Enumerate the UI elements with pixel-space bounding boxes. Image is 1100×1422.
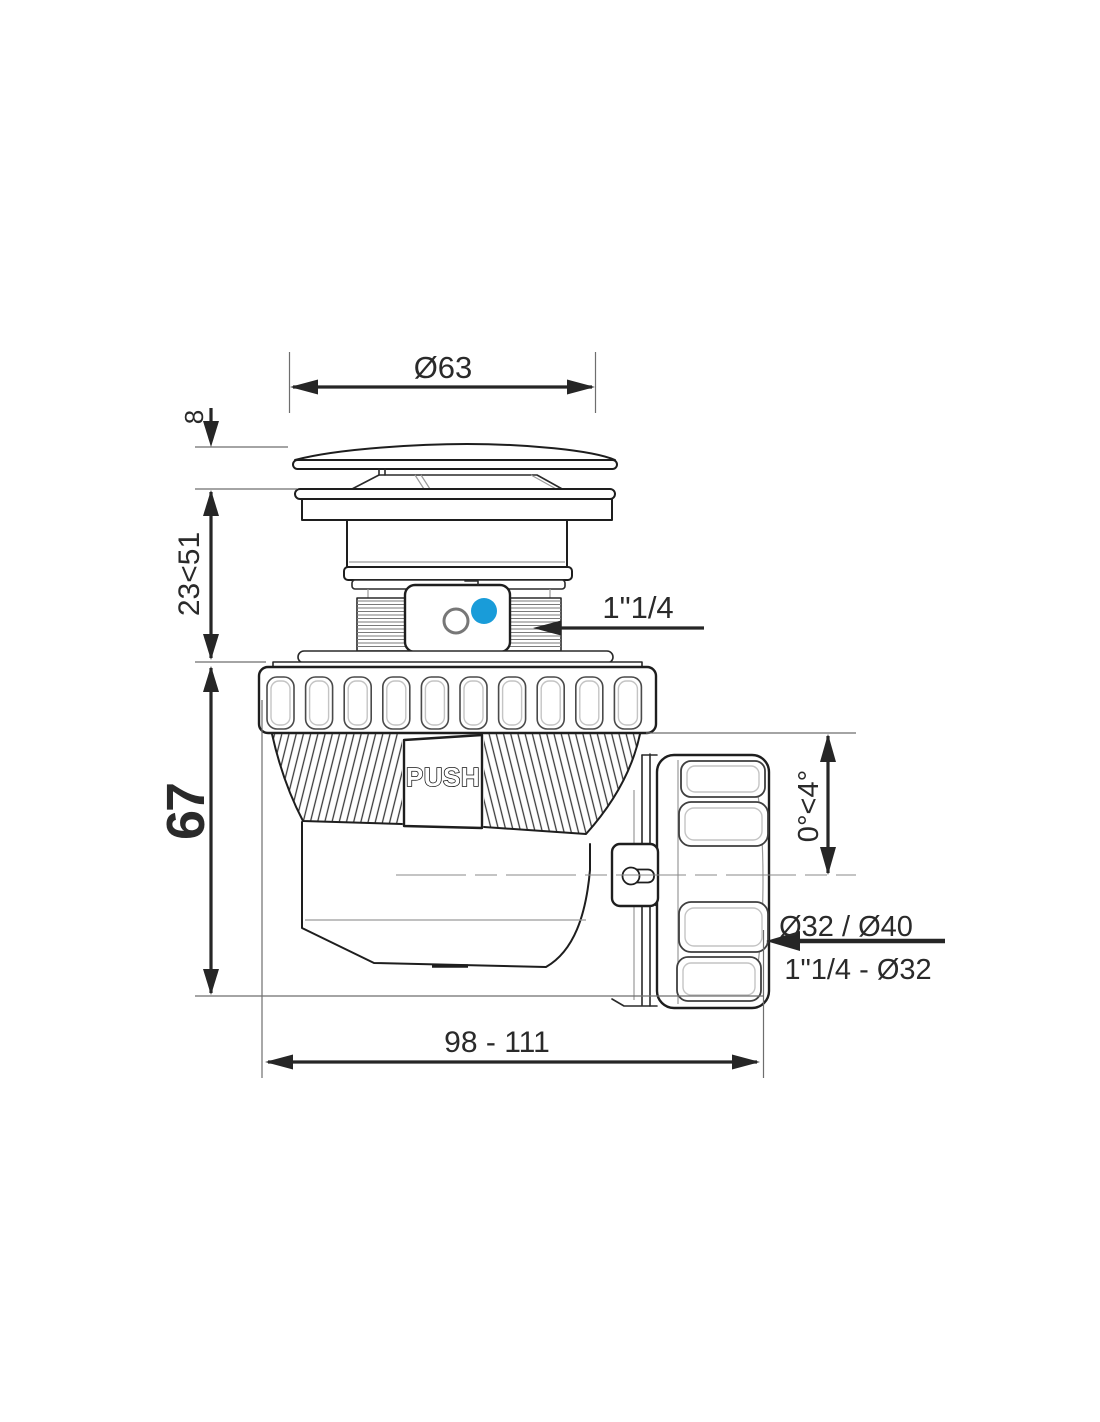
push-tab: PUSH [404,735,482,828]
dim-cap-height-label: 8 [179,410,209,424]
dim-cap-diameter: Ø63 [290,350,596,413]
indicator-plate [405,581,510,656]
technical-drawing: PUSH [0,0,1100,1422]
ring-nut [259,667,656,733]
dim-outlet-diameters-label: Ø32 / Ø40 [779,911,913,943]
white-dot-icon [444,609,468,633]
cap-dome [293,444,617,469]
dim-outlet-thread-label: 1"1/4 - Ø32 [784,954,931,986]
dim-inlet-thread-label: 1"1/4 [602,590,673,625]
flange [295,489,615,520]
dim-body-height-label: 67 [156,784,216,840]
waste-fitting-figure: PUSH [259,444,856,1008]
drawing-page: PUSH [0,0,1100,1422]
cap-rim-plate [293,460,617,469]
outlet-nut [657,755,769,1008]
dim-overall-length-label: 98 - 111 [444,1026,550,1059]
push-label: PUSH [406,762,480,792]
dim-cap-diameter-label: Ø63 [414,350,473,385]
cap-underside [352,469,564,490]
dim-outlet-angle-label: 0°<4° [793,770,825,842]
dim-cap-height: 8 [179,408,297,489]
dim-install-range: 23<51 [173,490,266,662]
blue-dot-icon [471,598,497,624]
nut-grip-recess [679,902,768,952]
cylinder-ring-upper [344,567,572,580]
dim-install-range-label: 23<51 [173,532,206,616]
ring-nut-top [273,651,642,668]
body-cup [302,822,590,967]
dim-outlet-connection: Ø32 / Ø40 1"1/4 - Ø32 [766,911,945,986]
